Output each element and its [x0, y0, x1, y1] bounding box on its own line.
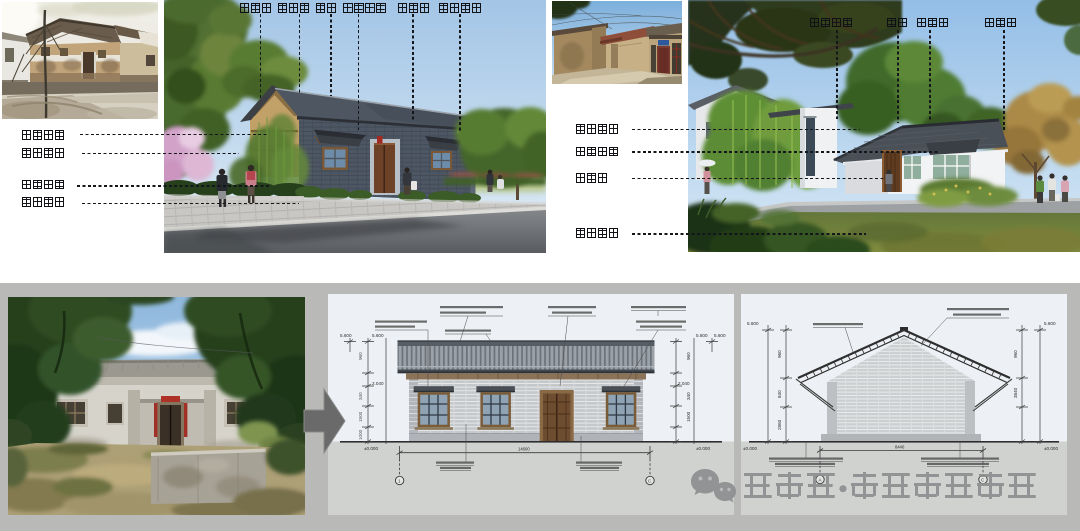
svg-text:5.600: 5.600	[747, 321, 759, 326]
svg-text:5.600: 5.600	[1044, 321, 1056, 326]
svg-text:5.600: 5.600	[696, 333, 708, 338]
svg-text:340: 340	[686, 392, 691, 400]
svg-text:5.600: 5.600	[714, 333, 726, 338]
svg-text:1500: 1500	[686, 411, 691, 422]
svg-text:340: 340	[358, 392, 363, 400]
svg-text:2.040: 2.040	[372, 381, 384, 386]
svg-text:14600: 14600	[518, 447, 530, 452]
svg-text:1500: 1500	[358, 411, 363, 422]
svg-text:2.040: 2.040	[678, 381, 690, 386]
svg-text:±0.000: ±0.000	[743, 446, 757, 451]
svg-text:840: 840	[777, 390, 782, 398]
svg-text:5.600: 5.600	[372, 333, 384, 338]
svg-text:1000: 1000	[358, 429, 363, 440]
svg-text:5.600: 5.600	[340, 333, 352, 338]
svg-text:3840: 3840	[1013, 387, 1018, 398]
svg-text:±0.000: ±0.000	[1044, 446, 1058, 451]
svg-text:960: 960	[777, 350, 782, 358]
svg-text:±0.000: ±0.000	[696, 446, 710, 451]
svg-text:960: 960	[1013, 350, 1018, 358]
svg-text:960: 960	[686, 352, 691, 360]
svg-text:960: 960	[358, 352, 363, 360]
svg-text:2860: 2860	[777, 419, 782, 430]
svg-text:8440: 8440	[895, 445, 905, 450]
svg-text:±0.000: ±0.000	[364, 446, 378, 451]
